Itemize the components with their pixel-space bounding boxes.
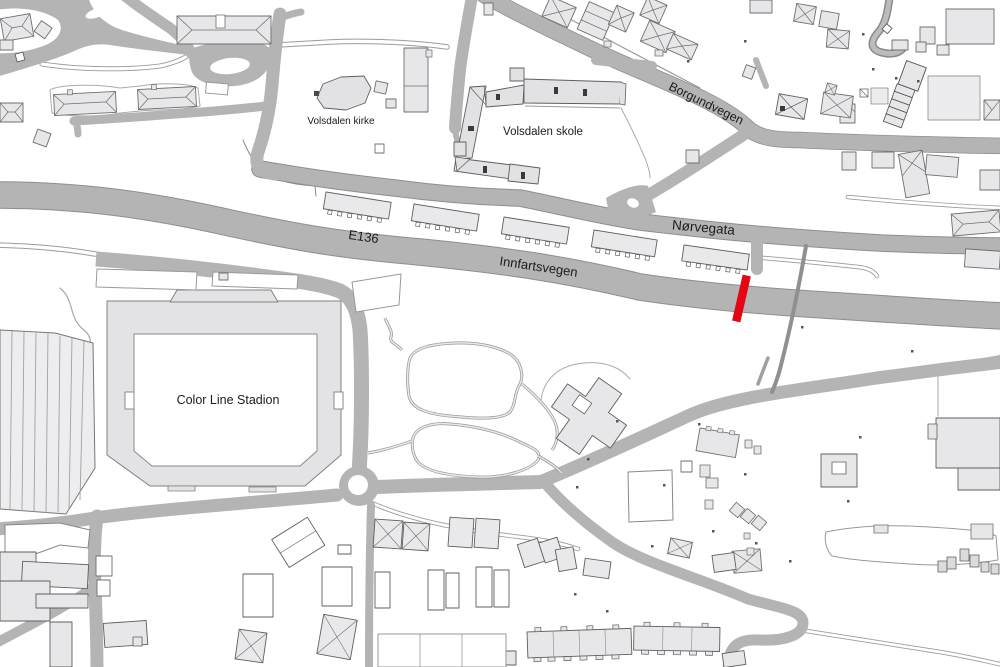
svg-text:Volsdalen skole: Volsdalen skole — [503, 126, 583, 138]
svg-text:Color Line Stadion: Color Line Stadion — [177, 393, 280, 407]
svg-text:Volsdalen kirke: Volsdalen kirke — [307, 116, 375, 127]
